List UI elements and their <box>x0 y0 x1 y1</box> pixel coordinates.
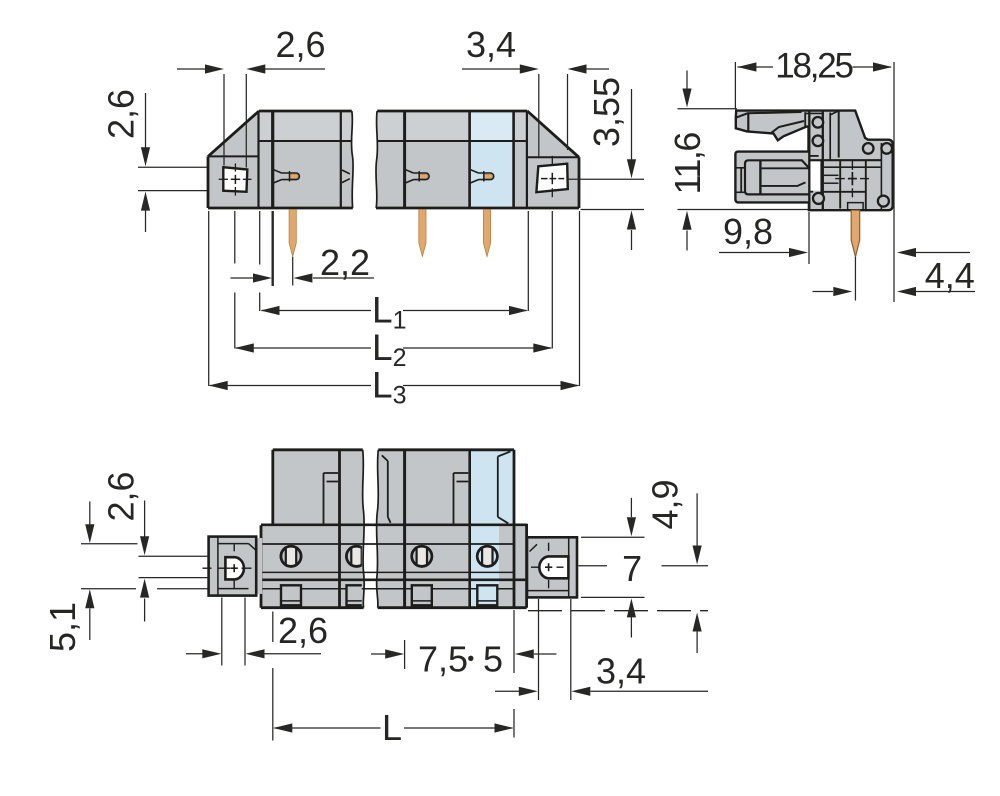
svg-text:7,5: 7,5 <box>418 639 468 680</box>
svg-text:18,25: 18,25 <box>775 47 852 86</box>
svg-text:3,55: 3,55 <box>586 77 627 147</box>
svg-text:3,4: 3,4 <box>466 24 516 65</box>
svg-text:4,4: 4,4 <box>925 255 975 296</box>
svg-text:L: L <box>382 707 402 748</box>
svg-text:5,1: 5,1 <box>42 602 83 652</box>
svg-text:2,6: 2,6 <box>101 89 142 139</box>
svg-text:2,6: 2,6 <box>278 610 328 651</box>
svg-text:3,4: 3,4 <box>596 651 646 692</box>
svg-text:11,6: 11,6 <box>667 133 708 195</box>
svg-text:2,6: 2,6 <box>101 471 142 521</box>
svg-text:7: 7 <box>622 548 642 589</box>
svg-text:2,6: 2,6 <box>275 24 325 65</box>
svg-text:4,9: 4,9 <box>645 479 686 529</box>
svg-text:2,2: 2,2 <box>320 242 370 283</box>
svg-text:5: 5 <box>483 639 503 680</box>
svg-text:9,8: 9,8 <box>723 211 773 252</box>
